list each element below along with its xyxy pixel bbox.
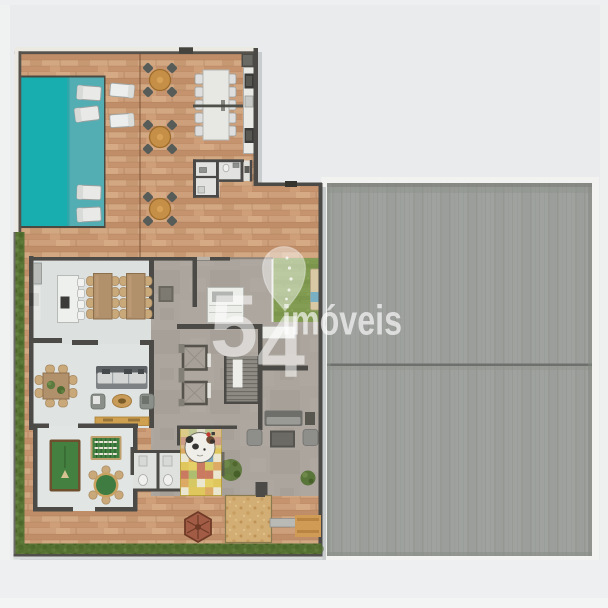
svg-text:imóveis: imóveis [282,297,402,344]
svg-text:5: 5 [210,276,258,375]
